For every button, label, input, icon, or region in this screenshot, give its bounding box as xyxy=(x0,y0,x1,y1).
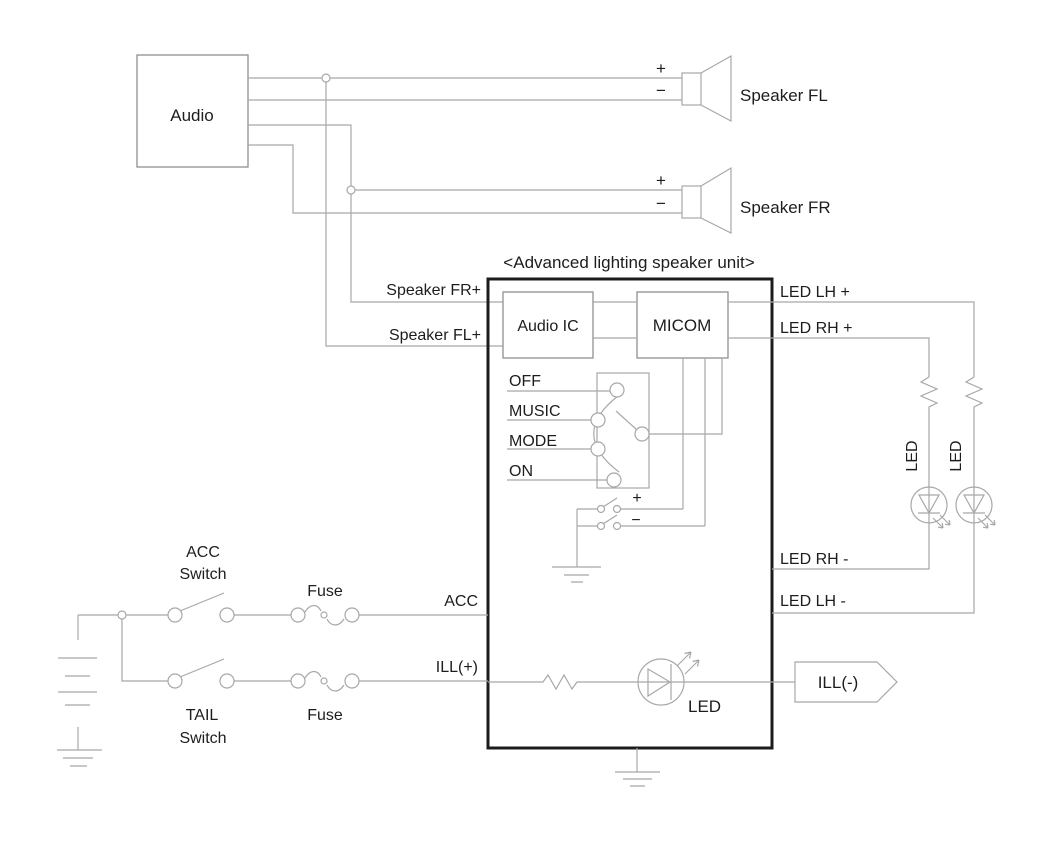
audio-ic-label: Audio IC xyxy=(517,318,578,335)
speaker-fr-label: Speaker FR xyxy=(740,198,831,217)
ill-minus-connector: ILL(-) xyxy=(795,662,897,702)
minus-contact-left xyxy=(598,523,605,530)
advanced-lighting-speaker-unit-box xyxy=(488,279,772,748)
wiring-diagram-page: Audio + − Speaker FL + − Speaker FR <Adv… xyxy=(0,0,1050,847)
fuse-ill-label: Fuse xyxy=(307,707,343,724)
ground-icon xyxy=(552,567,601,582)
power-switch-plus: + xyxy=(577,490,683,513)
resistor-lh-and-return xyxy=(772,377,982,613)
fuse-acc-label: Fuse xyxy=(307,583,343,600)
mode-selector-switch: OFF MUSIC MODE ON xyxy=(507,373,649,488)
speaker-fl-minus-sign: − xyxy=(656,81,666,100)
acc-switch-label-1: ACC xyxy=(186,544,220,561)
tail-circuit: TAIL Switch Fuse xyxy=(122,619,488,747)
battery-icon xyxy=(58,658,97,705)
speaker-fr: + − Speaker FR xyxy=(656,168,831,233)
contact-common xyxy=(635,427,649,441)
led-lh-plus-port-label: LED LH + xyxy=(780,284,850,301)
speaker-fl-plus-port-label: Speaker FL+ xyxy=(389,327,481,344)
tail-switch-label-2: Switch xyxy=(179,730,226,747)
fuse-ill-center xyxy=(321,678,327,684)
speaker-fr-minus-sign: − xyxy=(656,194,666,213)
speaker-fr-driver-icon xyxy=(682,186,701,218)
speaker-fl-plus-sign: + xyxy=(656,59,666,78)
fuse-ill-terminal-left xyxy=(291,674,305,688)
wire-junction-to-tail-switch xyxy=(122,619,168,681)
led-rh-plus-port-label: LED RH + xyxy=(780,320,852,337)
speaker-fl-driver-icon xyxy=(682,73,701,105)
micom-block: MICOM xyxy=(637,292,728,358)
fuse-ill-symbol xyxy=(291,671,359,691)
plus-switch-sign: + xyxy=(632,490,641,507)
led-harness: LED LED LED LH + LED RH + LED RH - LED L… xyxy=(728,284,995,613)
battery xyxy=(57,615,102,766)
micom-label: MICOM xyxy=(653,316,712,335)
wire-led-lh-plus xyxy=(728,302,974,377)
contact-music xyxy=(591,413,605,427)
led-lh-minus-port-label: LED LH - xyxy=(780,593,846,610)
wire-led-rh-plus xyxy=(728,338,929,377)
led-lh-symbol xyxy=(956,487,995,528)
unit-ground-icon xyxy=(615,772,660,786)
ill-plus-port-label: ILL(+) xyxy=(436,659,478,676)
led-inner-label: LED xyxy=(688,697,721,716)
acc-switch-contact-left xyxy=(168,608,182,622)
acc-port-label: ACC xyxy=(444,593,478,610)
contact-on xyxy=(607,473,621,487)
ill-minus-label: ILL(-) xyxy=(818,673,859,692)
audio-ic-block: Audio IC xyxy=(503,292,593,358)
switch-ground xyxy=(552,509,601,582)
fuse-acc-center xyxy=(321,612,327,618)
speaker-fl-label: Speaker FL xyxy=(740,86,828,105)
audio-label: Audio xyxy=(170,106,213,125)
junction-battery xyxy=(118,611,126,619)
speaker-fr-plus-port-label: Speaker FR+ xyxy=(386,282,481,299)
junction-fr-plus xyxy=(347,186,355,194)
fuse-ill-terminal-right xyxy=(345,674,359,688)
junction-fl-plus xyxy=(322,74,330,82)
tail-switch-label-1: TAIL xyxy=(186,707,219,724)
wire-micom-common-stub xyxy=(649,358,722,434)
illumination-led-circuit: LED ILL(-) xyxy=(488,652,897,716)
unit-title: <Advanced lighting speaker unit> xyxy=(503,253,754,272)
music-label: MUSIC xyxy=(509,403,561,420)
off-label: OFF xyxy=(509,373,541,390)
speaker-fl: + − Speaker FL xyxy=(656,56,828,121)
acc-circuit: ACC Switch Fuse xyxy=(78,544,488,625)
speaker-wires xyxy=(248,74,682,346)
tail-switch-contact-left xyxy=(168,674,182,688)
minus-contact-right xyxy=(614,523,621,530)
speaker-fl-cone-icon xyxy=(701,56,731,121)
contact-off xyxy=(610,383,624,397)
led-inner-emission-arrows xyxy=(677,652,699,674)
mode-switch-blade xyxy=(616,411,637,430)
speaker-fr-cone-icon xyxy=(701,168,731,233)
minus-switch-sign: − xyxy=(631,512,640,529)
fuse-acc-terminal-right xyxy=(345,608,359,622)
plus-contact-right xyxy=(614,506,621,513)
plus-contact-left xyxy=(598,506,605,513)
acc-switch-label-2: Switch xyxy=(179,566,226,583)
tail-switch-blade xyxy=(180,659,224,677)
audio-head-unit: Audio xyxy=(137,55,248,167)
battery-ground-icon xyxy=(57,750,102,766)
wire-fl-plus-feed xyxy=(326,78,503,346)
led-rh-vertical-label: LED xyxy=(904,440,921,471)
wiring-diagram: Audio + − Speaker FL + − Speaker FR <Adv… xyxy=(0,0,1050,847)
led-rh-symbol xyxy=(911,487,950,528)
tail-switch-contact-right xyxy=(220,674,234,688)
resistor-rh-and-return xyxy=(772,377,937,569)
led-lh-vertical-label: LED xyxy=(948,440,965,471)
fuse-acc-symbol xyxy=(291,605,359,625)
unit-ground xyxy=(615,748,660,786)
wire-ill-with-resistor xyxy=(488,675,772,689)
acc-switch-contact-right xyxy=(220,608,234,622)
acc-switch-blade xyxy=(180,593,224,611)
power-switch-minus: − xyxy=(577,512,705,530)
led-rh-minus-port-label: LED RH - xyxy=(780,551,848,568)
wire-fr-minus xyxy=(248,145,682,213)
contact-mode xyxy=(591,442,605,456)
fuse-acc-terminal-left xyxy=(291,608,305,622)
mode-label: MODE xyxy=(509,433,557,450)
on-label: ON xyxy=(509,463,533,480)
speaker-fr-plus-sign: + xyxy=(656,171,666,190)
